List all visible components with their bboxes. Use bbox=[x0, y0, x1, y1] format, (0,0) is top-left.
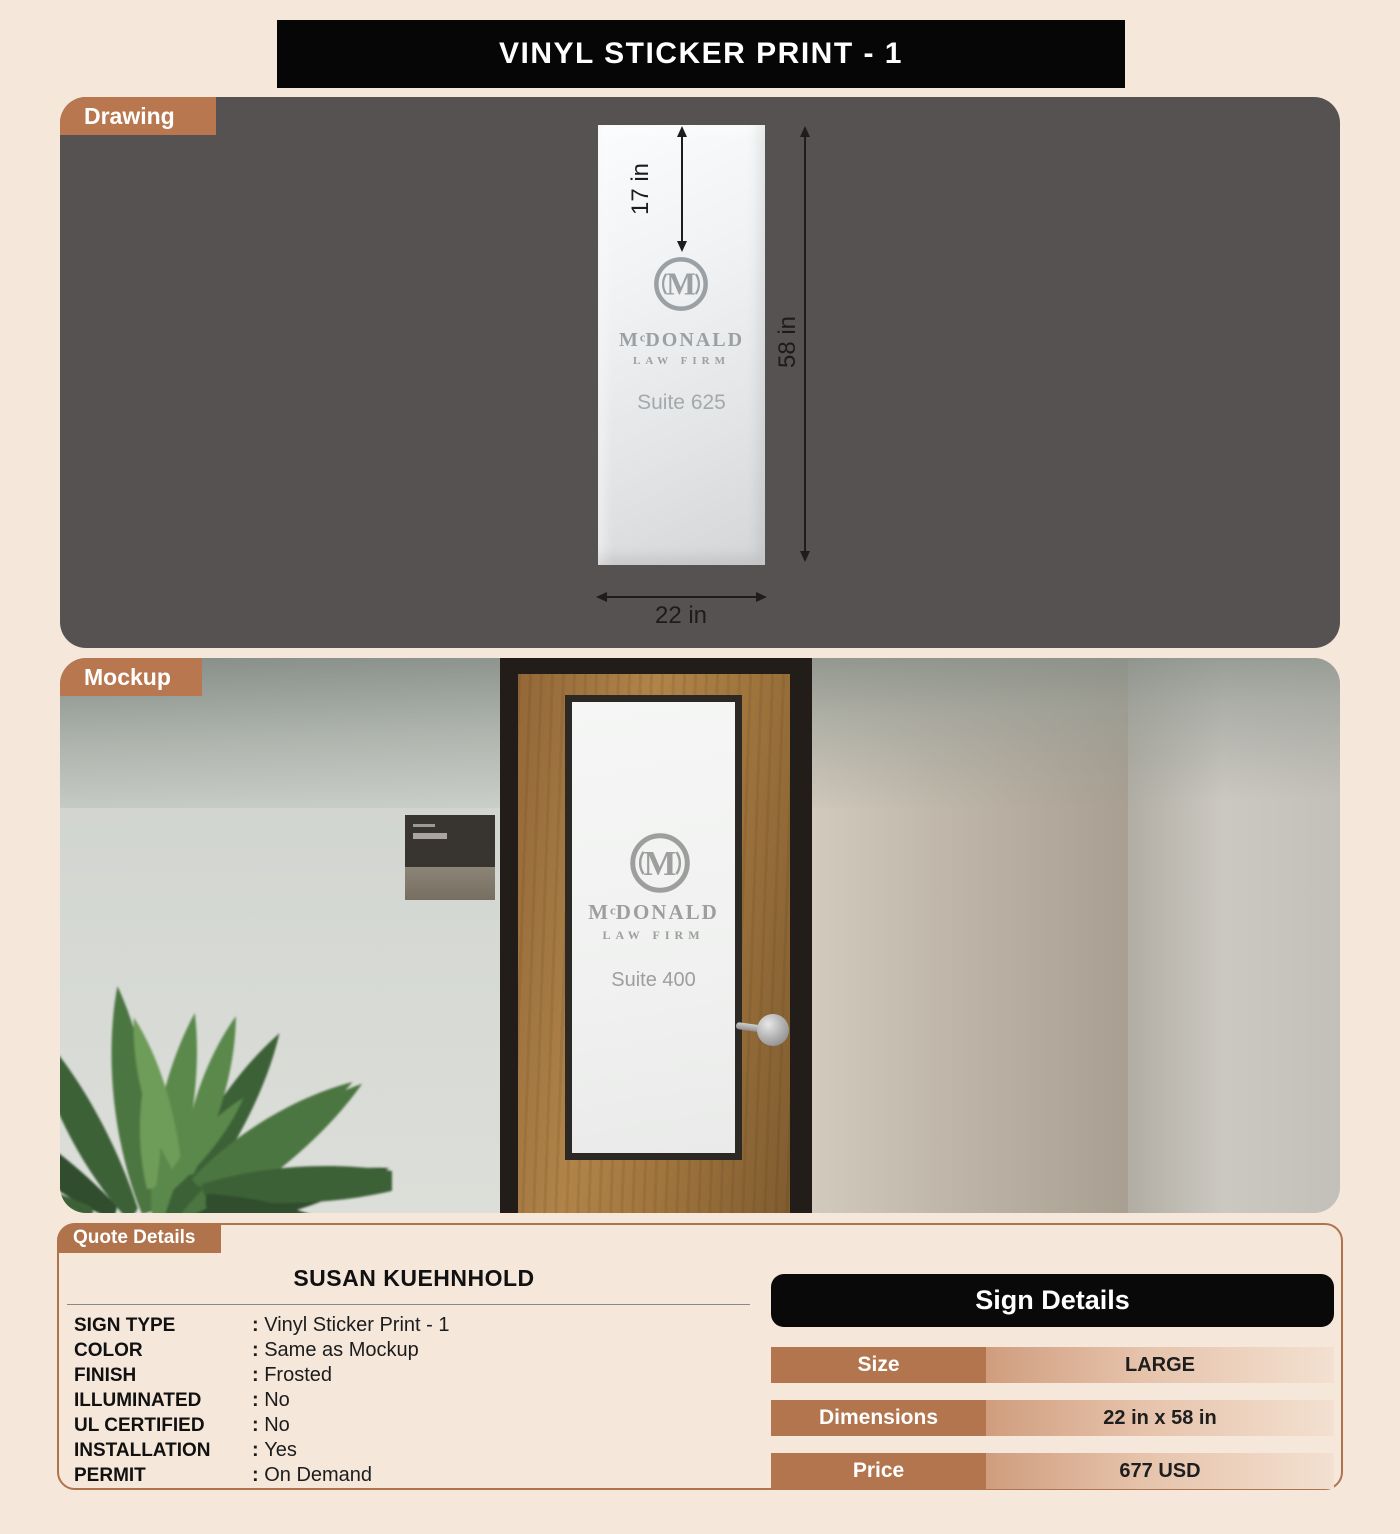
dim-label-22in: 22 in bbox=[621, 602, 741, 630]
dim-label-58in: 58 in bbox=[774, 282, 802, 402]
quote-tab-label: Quote Details bbox=[73, 1227, 195, 1249]
quote-tab: Quote Details bbox=[57, 1223, 221, 1253]
potted-plant bbox=[60, 919, 392, 1213]
spec-row-installation: INSTALLATION Yes bbox=[74, 1438, 734, 1463]
divider bbox=[67, 1304, 750, 1305]
spec-label: COLOR bbox=[74, 1338, 252, 1363]
sign-details-row-price: Price 677 USD bbox=[771, 1453, 1334, 1489]
dim-arrow-17in bbox=[681, 128, 683, 250]
mockup-tab-label: Mockup bbox=[84, 664, 171, 691]
page-title: VINYL STICKER PRINT - 1 bbox=[277, 20, 1125, 88]
spec-row-sign-type: SIGN TYPE Vinyl Sticker Print - 1 bbox=[74, 1313, 734, 1338]
spec-value: Frosted bbox=[252, 1363, 332, 1388]
logo-monogram: M bbox=[644, 844, 677, 883]
wall-plaque-bottom bbox=[405, 867, 495, 900]
spec-row-ul-certified: UL CERTIFIED No bbox=[74, 1413, 734, 1438]
sign-details-header: Sign Details bbox=[771, 1274, 1334, 1327]
dim-arrow-22in bbox=[598, 596, 765, 598]
sign-details-value: LARGE bbox=[986, 1347, 1334, 1383]
sign-details-label: Size bbox=[771, 1347, 986, 1383]
spec-row-illuminated: ILLUMINATED No bbox=[74, 1388, 734, 1413]
spec-label: INSTALLATION bbox=[74, 1438, 252, 1463]
spec-list: SIGN TYPE Vinyl Sticker Print - 1 COLOR … bbox=[74, 1313, 734, 1488]
door-handle-knob bbox=[757, 1014, 789, 1046]
spec-row-permit: PERMIT On Demand bbox=[74, 1463, 734, 1488]
spec-value: Yes bbox=[252, 1438, 297, 1463]
drawing-tab: Drawing bbox=[60, 97, 216, 135]
spec-row-finish: FINISH Frosted bbox=[74, 1363, 734, 1388]
firm-tagline: LAW FIRM bbox=[598, 355, 765, 367]
spec-row-color: COLOR Same as Mockup bbox=[74, 1338, 734, 1363]
sign-details-label: Price bbox=[771, 1453, 986, 1489]
dim-arrow-58in bbox=[804, 128, 806, 560]
law-firm-logo-mark: M bbox=[629, 832, 691, 894]
sign-details-value: 22 in x 58 in bbox=[986, 1400, 1334, 1436]
suite-number: Suite 625 bbox=[598, 391, 765, 415]
mockup-panel: M McDONALD LAW FIRM Suite 400 bbox=[60, 658, 1340, 1213]
sign-details-value: 677 USD bbox=[986, 1453, 1334, 1489]
firm-tagline: LAW FIRM bbox=[572, 928, 735, 943]
spec-value: On Demand bbox=[252, 1463, 372, 1488]
dim-label-17in: 17 in bbox=[627, 129, 655, 249]
customer-name: SUSAN KUEHNHOLD bbox=[69, 1265, 759, 1292]
law-firm-logo-mark: M bbox=[653, 256, 709, 312]
wall-plaque-top bbox=[405, 815, 495, 867]
spec-label: SIGN TYPE bbox=[74, 1313, 252, 1338]
spec-label: ILLUMINATED bbox=[74, 1388, 252, 1413]
firm-name: McDONALD bbox=[572, 900, 735, 925]
spec-label: FINISH bbox=[74, 1363, 252, 1388]
drawing-tab-label: Drawing bbox=[84, 103, 175, 130]
spec-label: PERMIT bbox=[74, 1463, 252, 1488]
sign-details-title: Sign Details bbox=[975, 1285, 1130, 1316]
firm-name: McDONALD bbox=[598, 329, 765, 352]
wall-plaque-sign bbox=[405, 815, 495, 900]
sign-details-label: Dimensions bbox=[771, 1400, 986, 1436]
drawing-panel: Drawing M McDONALD LAW FIRM Suite 625 17… bbox=[60, 97, 1340, 648]
frosted-glass-sticker: M McDONALD LAW FIRM Suite 400 bbox=[565, 695, 742, 1160]
spec-value: No bbox=[252, 1413, 290, 1438]
sign-details-row-size: Size LARGE bbox=[771, 1347, 1334, 1383]
suite-number: Suite 400 bbox=[572, 969, 735, 992]
spec-value: Vinyl Sticker Print - 1 bbox=[252, 1313, 449, 1338]
logo-text-block: McDONALD LAW FIRM Suite 625 bbox=[598, 329, 765, 415]
spec-value: Same as Mockup bbox=[252, 1338, 419, 1363]
quote-details-panel: Quote Details SUSAN KUEHNHOLD SIGN TYPE … bbox=[57, 1223, 1343, 1490]
mockup-tab: Mockup bbox=[60, 658, 202, 696]
logo-text-block: McDONALD LAW FIRM Suite 400 bbox=[572, 900, 735, 992]
spec-value: No bbox=[252, 1388, 290, 1413]
sign-details-row-dimensions: Dimensions 22 in x 58 in bbox=[771, 1400, 1334, 1436]
logo-monogram: M bbox=[666, 267, 696, 302]
spec-label: UL CERTIFIED bbox=[74, 1413, 252, 1438]
